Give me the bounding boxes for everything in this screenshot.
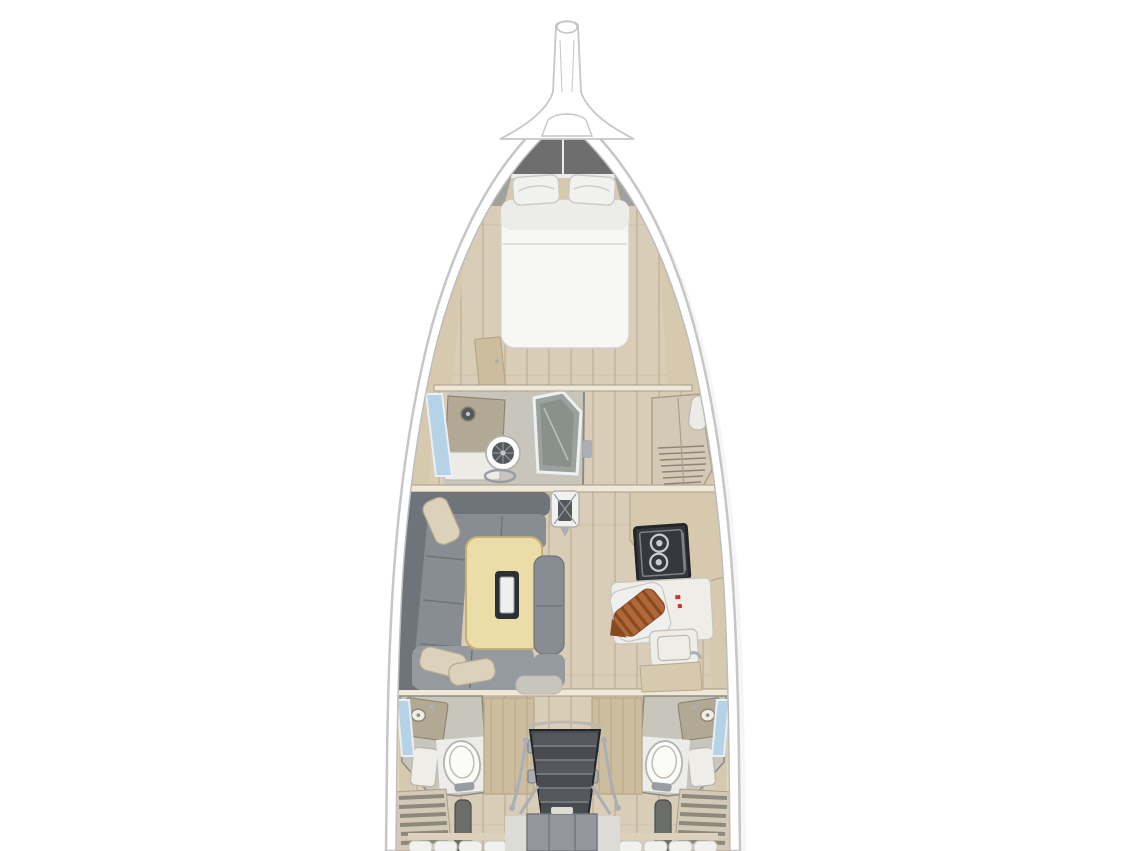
- galley-end-cabinet: [640, 662, 702, 692]
- sink-drain: [466, 412, 470, 416]
- forward-cabin-door: [474, 337, 505, 389]
- bulkhead-forward: [434, 385, 692, 391]
- handrail-post: [615, 805, 621, 811]
- salon: [398, 491, 579, 694]
- engine-side-panel-port: [505, 816, 527, 851]
- galley-sink: [649, 629, 699, 667]
- red-accent-mark-1: [675, 595, 680, 599]
- door-panel: [474, 337, 505, 389]
- handrail-post: [523, 737, 529, 743]
- step-tread: [537, 775, 592, 787]
- yacht-floorplan-figure: [0, 0, 1135, 851]
- floorplan-svg: [0, 0, 1135, 851]
- door-hinge-fitting: [583, 440, 592, 458]
- stove-unit: [634, 524, 690, 581]
- step-tread: [533, 733, 597, 745]
- step-tread: [534, 747, 595, 759]
- berth-edge-trim: [408, 833, 508, 840]
- handrail-post: [601, 737, 607, 743]
- engine-side-panel-starboard: [598, 816, 620, 851]
- pillow-starboard: [568, 174, 616, 205]
- forward-head: [426, 390, 592, 487]
- nav-seat: [516, 676, 562, 694]
- handrail-post: [509, 805, 515, 811]
- centerboard-slot: [500, 577, 514, 613]
- engine-box: [527, 814, 597, 851]
- engine-hatch-latch: [551, 807, 573, 814]
- bowsprit: [500, 21, 634, 139]
- pillow-port: [512, 174, 560, 205]
- bowsprit-body: [500, 22, 634, 140]
- salon-bench: [534, 556, 564, 654]
- berth-cushion: [459, 841, 482, 851]
- berth-cushion: [434, 841, 457, 851]
- berth-cushion: [409, 841, 432, 851]
- galley-sink-area: [649, 629, 701, 668]
- red-accent-mark-2: [678, 604, 682, 608]
- step-tread: [536, 761, 594, 773]
- interior: [380, 100, 750, 851]
- toilet-hinge: [501, 451, 506, 456]
- berth-cushion: [484, 841, 507, 851]
- step-tread: [539, 789, 590, 801]
